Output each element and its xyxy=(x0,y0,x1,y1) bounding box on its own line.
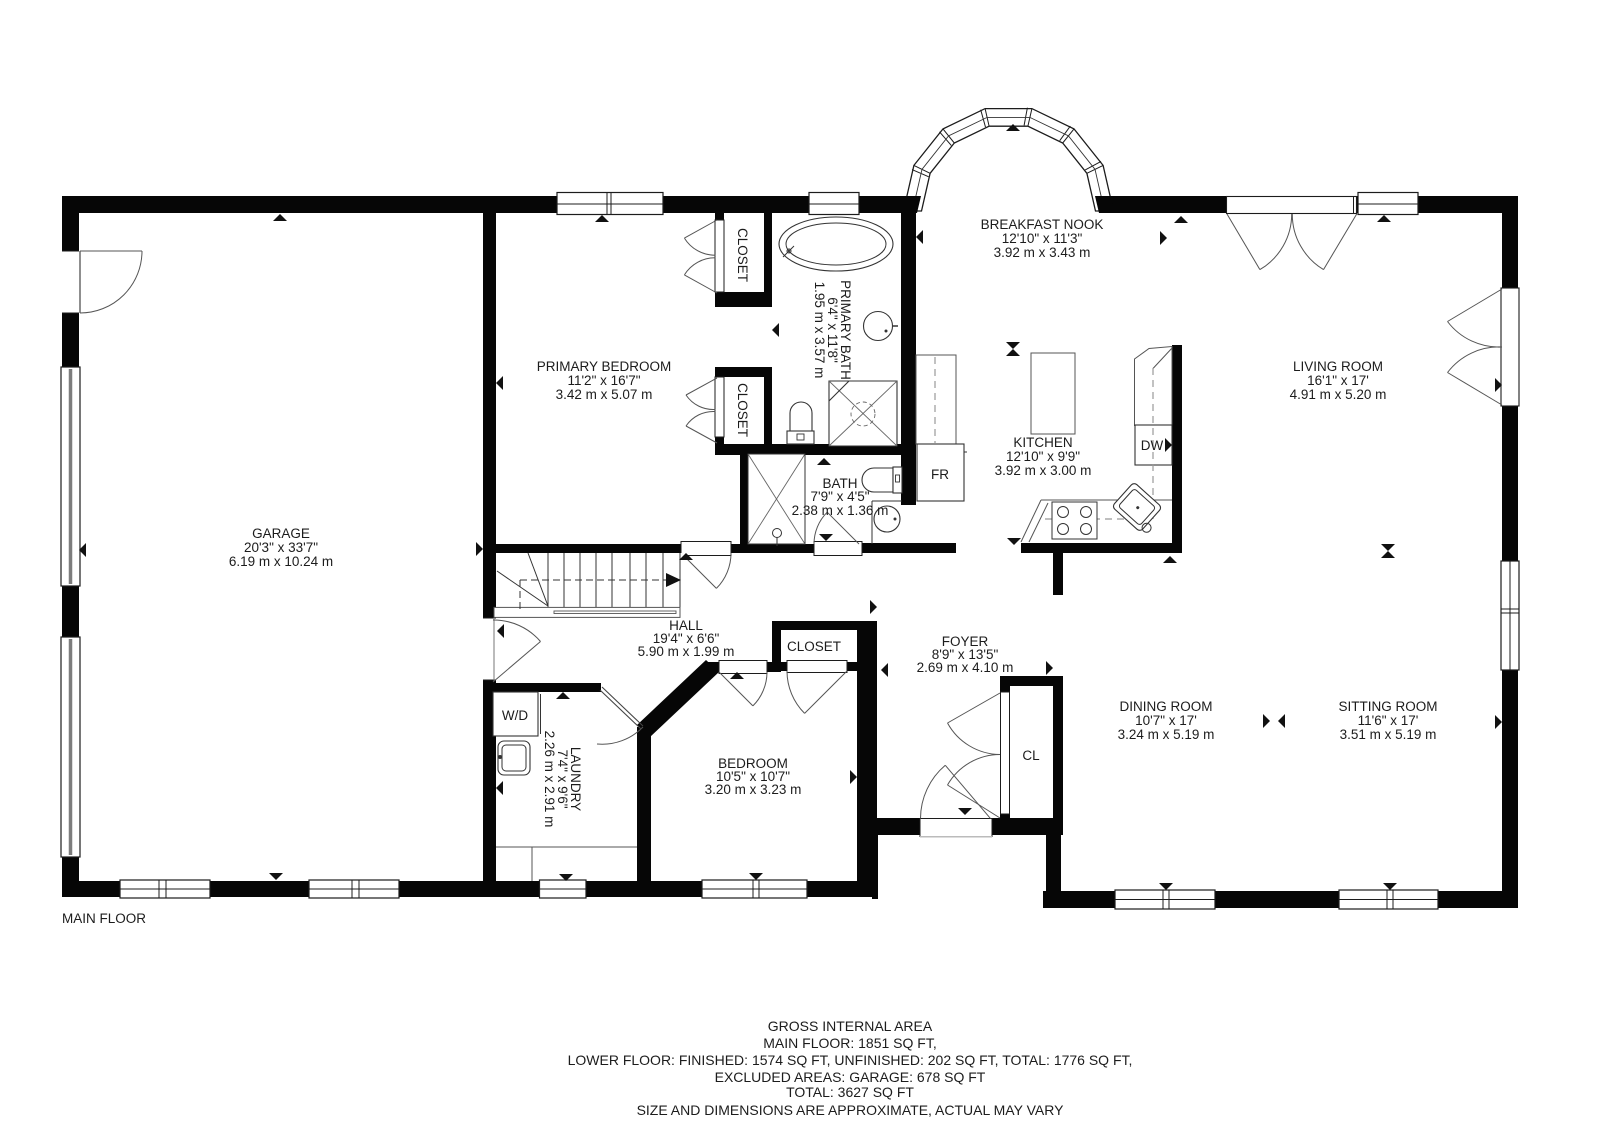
svg-text:CLOSET: CLOSET xyxy=(735,383,750,437)
svg-text:W/D: W/D xyxy=(502,708,528,723)
svg-text:3.42 m x 5.07 m: 3.42 m x 5.07 m xyxy=(556,387,653,402)
svg-text:10'7" x 17': 10'7" x 17' xyxy=(1135,713,1197,728)
svg-text:3.20 m x 3.23 m: 3.20 m x 3.23 m xyxy=(705,782,802,797)
svg-text:GROSS INTERNAL AREA: GROSS INTERNAL AREA xyxy=(768,1018,933,1034)
svg-text:3.92 m x 3.43 m: 3.92 m x 3.43 m xyxy=(994,245,1091,260)
svg-text:3.24 m x 5.19 m: 3.24 m x 5.19 m xyxy=(1118,727,1215,742)
svg-text:7'9" x 4'5": 7'9" x 4'5" xyxy=(810,489,869,504)
svg-text:CLOSET: CLOSET xyxy=(787,639,841,654)
svg-text:KITCHEN: KITCHEN xyxy=(1013,435,1072,450)
svg-text:16'1" x 17': 16'1" x 17' xyxy=(1307,373,1369,388)
svg-text:12'10" x 9'9": 12'10" x 9'9" xyxy=(1006,449,1080,464)
svg-text:6.19 m x 10.24 m: 6.19 m x 10.24 m xyxy=(229,554,333,569)
svg-text:11'6" x 17': 11'6" x 17' xyxy=(1358,713,1419,728)
svg-text:FR: FR xyxy=(931,467,949,482)
svg-text:PRIMARY BEDROOM: PRIMARY BEDROOM xyxy=(537,359,672,374)
svg-text:LOWER FLOOR: FINISHED: 1574 SQ: LOWER FLOOR: FINISHED: 1574 SQ FT, UNFIN… xyxy=(568,1052,1133,1068)
svg-text:5.90 m x 1.99 m: 5.90 m x 1.99 m xyxy=(638,644,735,659)
svg-text:DINING ROOM: DINING ROOM xyxy=(1120,699,1213,714)
svg-text:BREAKFAST NOOK: BREAKFAST NOOK xyxy=(981,217,1104,232)
svg-text:MAIN FLOOR: MAIN FLOOR xyxy=(62,911,146,926)
svg-text:SITTING ROOM: SITTING ROOM xyxy=(1339,699,1438,714)
svg-text:12'10" x 11'3": 12'10" x 11'3" xyxy=(1002,231,1083,246)
svg-text:4.91 m x 5.20 m: 4.91 m x 5.20 m xyxy=(1290,387,1387,402)
svg-text:11'2" x 16'7": 11'2" x 16'7" xyxy=(567,373,640,388)
svg-text:3.92 m x 3.00 m: 3.92 m x 3.00 m xyxy=(995,463,1092,478)
svg-text:DW: DW xyxy=(1141,438,1164,453)
svg-text:EXCLUDED AREAS: GARAGE: 678 SQ: EXCLUDED AREAS: GARAGE: 678 SQ FT xyxy=(715,1069,986,1085)
svg-text:CLOSET: CLOSET xyxy=(735,228,750,282)
svg-text:LIVING ROOM: LIVING ROOM xyxy=(1293,359,1383,374)
svg-text:1.95 m x 3.57 m: 1.95 m x 3.57 m xyxy=(812,282,827,379)
svg-text:2.69 m x 4.10 m: 2.69 m x 4.10 m xyxy=(917,660,1014,675)
svg-text:CL: CL xyxy=(1022,748,1040,763)
svg-text:2.26 m x 2.91 m: 2.26 m x 2.91 m xyxy=(542,731,557,828)
svg-text:MAIN FLOOR: 1851 SQ FT,: MAIN FLOOR: 1851 SQ FT, xyxy=(763,1035,937,1051)
svg-text:SIZE AND DIMENSIONS ARE APPROX: SIZE AND DIMENSIONS ARE APPROXIMATE, ACT… xyxy=(637,1102,1065,1118)
svg-text:GARAGE: GARAGE xyxy=(252,526,310,541)
svg-text:2.38 m x 1.36 m: 2.38 m x 1.36 m xyxy=(792,503,889,518)
svg-text:TOTAL: 3627 SQ FT: TOTAL: 3627 SQ FT xyxy=(786,1084,914,1100)
svg-text:3.51 m x 5.19 m: 3.51 m x 5.19 m xyxy=(1340,727,1437,742)
svg-text:20'3" x 33'7": 20'3" x 33'7" xyxy=(244,540,318,555)
